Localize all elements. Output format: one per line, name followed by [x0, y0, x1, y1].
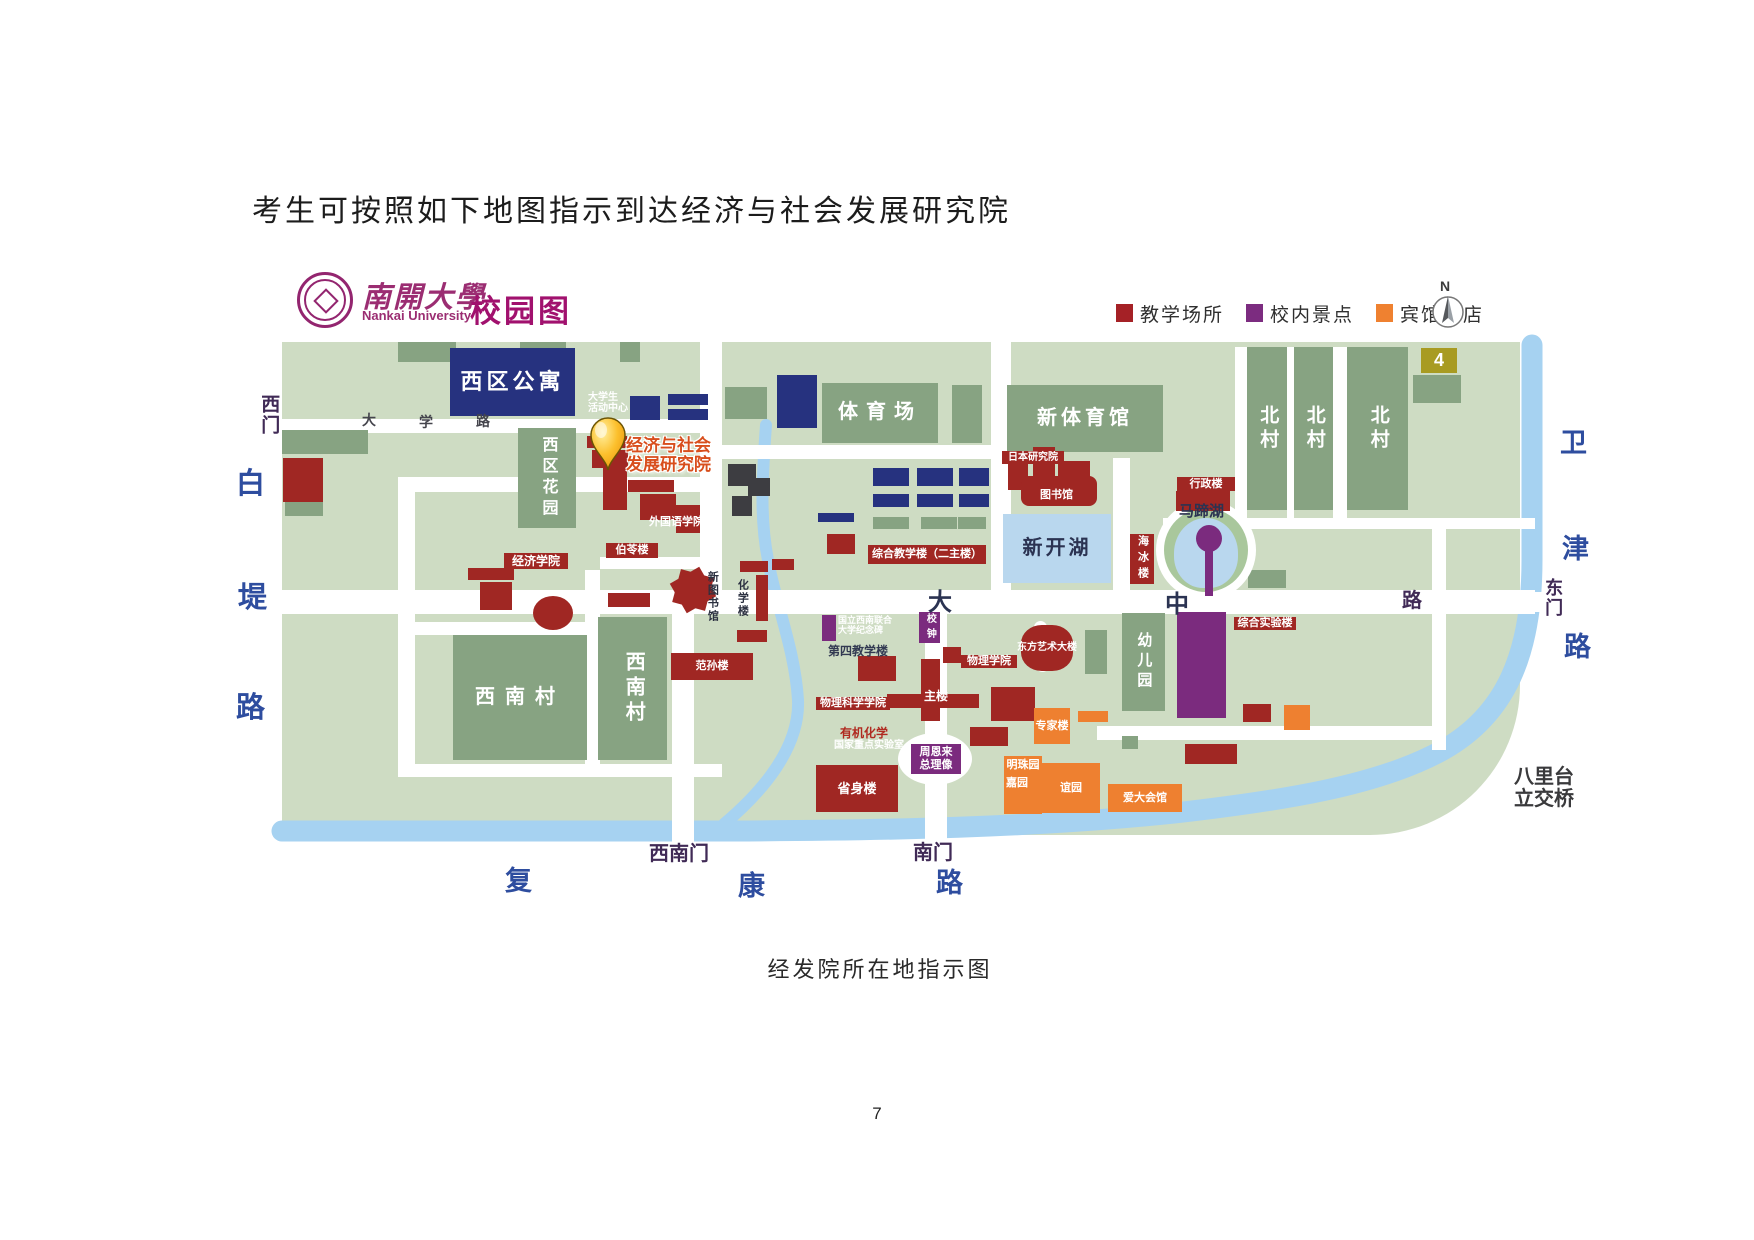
building-beicun-2-label: 北村 [1302, 405, 1324, 453]
red-block [628, 480, 674, 492]
figure-caption: 经发院所在地指示图 [767, 952, 992, 984]
road-label-fukanglu-3: 路 [936, 868, 963, 898]
navy-block [959, 468, 989, 486]
document-page: 考生可按照如下地图指示到达经济与社会发展研究院 南開大學 Nankai Univ… [0, 0, 1754, 1240]
chip-wulikexuexueyuan: 物理科学学院 [816, 697, 890, 710]
building-xiqu-huayuan-label: 西区花园 [538, 436, 557, 520]
page-number: 7 [872, 1104, 881, 1124]
building-beicun-2: 北村 [1294, 347, 1333, 510]
label-huodongzhongxin: 大学生活动中心 [588, 392, 628, 414]
lake-xinkaihu: 新开湖 [1003, 514, 1111, 583]
label-zhulou: 主楼 [924, 690, 948, 703]
building-aidahuiguan: 爱大会馆 [1108, 784, 1182, 812]
navy-block [873, 494, 909, 507]
red-block [772, 559, 794, 570]
gate-label-ximen: 西门 [258, 394, 279, 436]
chip-zongheshiyanlou-label: 综合实验楼 [1238, 617, 1293, 630]
memorial-chip [822, 615, 836, 641]
label-huaxuelou: 化学楼 [736, 579, 748, 618]
logo-en-text: Nankai University [362, 308, 471, 323]
red-block [1185, 744, 1237, 764]
chip-xingzhenglou-label: 行政楼 [1190, 478, 1223, 491]
road-label-baidilu-1: 白 [236, 468, 265, 500]
building-fansunlou: 范孙楼 [671, 653, 753, 680]
gate-label-nanmen: 南门 [913, 842, 953, 864]
chip-wulikexuexueyuan-label: 物理科学学院 [820, 697, 886, 710]
green-block [1413, 375, 1461, 403]
navy-block [630, 396, 660, 420]
orange-block [1078, 711, 1108, 722]
road-v7a [1287, 347, 1294, 518]
navy-block [668, 394, 708, 405]
label-zhongdianshiyanshi: 国家重点实验室 [834, 740, 904, 751]
nankai-logo-icon [297, 272, 353, 328]
building-beicun-1-label: 北村 [1256, 405, 1278, 453]
road-label-daxuelu-1: 大 [362, 413, 376, 429]
label-youjihuaxue: 有机化学 [840, 727, 888, 740]
red-block [756, 575, 768, 621]
road-label-dazhonglu-1: 大 [928, 590, 952, 617]
road-v17 [398, 492, 415, 765]
red-block [1243, 704, 1271, 722]
chip-xingzhenglou: 行政楼 [1177, 477, 1235, 491]
green-block [398, 342, 456, 362]
label-matihu: 马蹄湖 [1179, 504, 1224, 521]
road-v5 [1113, 458, 1130, 590]
target-label-jingfayuan: 经济与社会发展研究院 [626, 436, 711, 474]
label-xintushuguan: 新图书馆 [706, 571, 718, 623]
building-haibinglou: 海冰楼 [1130, 534, 1154, 584]
label-disijiaoxuelou: 第四教学楼 [828, 645, 888, 658]
building-xinancun: 西南村 [453, 635, 587, 760]
building-fansunlou-label: 范孙楼 [696, 660, 729, 673]
road-h19 [398, 622, 600, 635]
statue-zhouenlai-label: 周恩来总理像 [920, 746, 953, 772]
navy-block [917, 468, 953, 486]
red-block [603, 468, 627, 510]
building-beicun-3-label: 北村 [1366, 405, 1388, 453]
navy-block [777, 375, 817, 428]
road-h5 [1097, 726, 1443, 740]
orange-block [1284, 705, 1310, 730]
legend-swatch-icon [1116, 304, 1133, 322]
chip-xiaozhong-label: 校钟 [924, 613, 936, 643]
building-xiqu-gongyu: 西区公寓 [450, 348, 575, 416]
road-v7b [1333, 347, 1347, 518]
red-block [970, 727, 1008, 746]
red-block [827, 534, 855, 554]
road-label-dazhonglu-2: 中 [1165, 592, 1189, 619]
building-xinancun-2-label: 西南村 [621, 651, 645, 726]
building-xintiyuguan-label: 新体育馆 [1037, 407, 1133, 431]
red-block [858, 656, 896, 681]
red-block [480, 582, 512, 610]
road-label-dazhonglu-3: 路 [1402, 590, 1422, 612]
gate-label-dongmen: 东门 [1543, 578, 1563, 618]
legend-swatch-icon [1246, 304, 1263, 322]
green-block [958, 517, 986, 529]
legend-item-1: 校内景点 [1246, 300, 1354, 327]
chip-bolinglou-label: 伯苓楼 [616, 544, 649, 557]
green-block [921, 517, 957, 529]
road-label-baidilu-2: 堤 [238, 582, 267, 614]
statue-zhouenlai: 周恩来总理像 [911, 744, 961, 774]
building-youeryuan: 幼儿园 [1122, 613, 1165, 711]
label-jinianbei: 国立西南联合大学纪念碑 [838, 615, 892, 635]
building-xiqu-gongyu-label: 西区公寓 [460, 369, 564, 395]
matihu-lotus [1196, 525, 1222, 552]
lake-xinkaihu-label: 新开湖 [1023, 537, 1092, 561]
chip-jingjixueyuan-label: 经济学院 [512, 554, 560, 568]
matihu-lotus-stem [1205, 550, 1213, 596]
road-label-daxuelu-2: 学 [419, 415, 433, 431]
label-tushuguan: 图书馆 [1040, 489, 1073, 501]
building-xiqu-huayuan: 西区花园 [518, 428, 576, 528]
navy-block [873, 468, 909, 486]
red-block [943, 647, 961, 663]
gray-block [732, 496, 752, 516]
building-xinancun-label: 西南村 [475, 686, 565, 710]
road-label-weijinlu-2: 津 [1562, 534, 1589, 564]
road-label-daxuelu-3: 路 [476, 414, 490, 430]
building-mingzhuyuan-label: 明珠园 [1007, 756, 1040, 772]
building-xintiyuguan: 新体育馆 [1007, 385, 1163, 452]
red-block [468, 568, 514, 580]
navy-block [818, 513, 854, 522]
building-yiyuan-label: 谊园 [1060, 782, 1082, 795]
red-block [283, 458, 323, 502]
road-label-fukanglu-1: 复 [505, 866, 532, 896]
red-round-block [533, 596, 573, 630]
page-title: 考生可按照如下地图指示到达经济与社会发展研究院 [252, 186, 1011, 230]
road-label-baidilu-3: 路 [236, 692, 265, 724]
location-pin-icon [584, 414, 632, 472]
building-beicun-1: 北村 [1247, 347, 1287, 510]
purple-block [1177, 612, 1226, 718]
marker-4: 4 [1421, 348, 1457, 373]
red-block [991, 687, 1035, 721]
building-haibinglou-label: 海冰楼 [1136, 535, 1149, 583]
green-block [725, 387, 767, 419]
building-yiyuan: 谊园 [1042, 763, 1100, 813]
building-aidahuiguan-label: 爱大会馆 [1123, 792, 1167, 805]
label-balitai: 八里台立交桥 [1514, 766, 1574, 811]
road-v2b [672, 600, 694, 844]
red-block [608, 593, 650, 607]
chip-wulixueyuan: 物理学院 [961, 655, 1017, 668]
green-block [1085, 630, 1107, 674]
chip-bolinglou: 伯苓楼 [606, 543, 658, 558]
legend-item-0: 教学场所 [1116, 300, 1224, 327]
road-v6 [1235, 347, 1247, 518]
chip-wulixueyuan-label: 物理学院 [967, 655, 1011, 668]
gate-label-xinanmen: 西南门 [649, 843, 709, 865]
building-shengshenlou: 省身楼 [816, 765, 898, 812]
map-title: 校园图 [470, 286, 572, 331]
building-shengshenlou-label: 省身楼 [837, 781, 876, 796]
green-block [1122, 736, 1138, 749]
red-block [740, 561, 768, 572]
navy-block [668, 409, 708, 420]
chip-ribenyanjiuyuan: 日本研究院 [1002, 451, 1064, 464]
road-h2 [702, 445, 1005, 459]
marker-4-label: 4 [1434, 350, 1444, 371]
building-tiyuchang: 体育场 [822, 383, 938, 443]
road-label-weijinlu-3: 路 [1564, 632, 1591, 662]
building-xinancun-2: 西南村 [598, 617, 667, 760]
building-youeryuan-label: 幼儿园 [1135, 632, 1153, 692]
compass-icon [1428, 292, 1468, 332]
chip-zongheshiyanlou: 综合实验楼 [1234, 617, 1296, 630]
green-block [952, 385, 982, 443]
green-block [282, 430, 368, 454]
building-zhuanjialou-label: 专家楼 [1036, 720, 1069, 733]
road-label-weijinlu-1: 卫 [1560, 428, 1587, 458]
chip-jingjixueyuan: 经济学院 [504, 553, 568, 569]
road-v8 [1432, 518, 1446, 750]
navy-block [917, 494, 953, 507]
legend-label: 校内景点 [1270, 300, 1354, 327]
gray-block [748, 478, 770, 496]
green-block [620, 342, 640, 362]
chip-ribenyanjiuyuan-label: 日本研究院 [1008, 452, 1058, 464]
green-block [285, 502, 323, 516]
building-zhuanjialou: 专家楼 [1034, 708, 1070, 744]
green-block [873, 517, 909, 529]
legend-swatch-icon [1376, 304, 1393, 322]
building-beicun-3: 北村 [1347, 347, 1408, 510]
road-dazhonglu [282, 590, 1535, 614]
label-jiayuan: 嘉园 [1006, 777, 1028, 789]
red-block [737, 630, 767, 642]
building-dongfangyishu: 东方艺术大楼 [1021, 625, 1073, 671]
building-dongfangyishu-label: 东方艺术大楼 [1017, 642, 1077, 654]
chip-zonghejiaoxuelou: 综合教学楼（二主楼） [868, 545, 986, 564]
navy-block [959, 494, 989, 507]
building-tiyuchang-label: 体育场 [838, 401, 922, 425]
chip-zonghejiaoxuelou-label: 综合教学楼（二主楼） [872, 548, 982, 561]
road-label-fukanglu-2: 康 [738, 871, 765, 901]
green-block [1248, 570, 1286, 588]
legend-label: 教学场所 [1140, 300, 1224, 327]
label-waiguoyu: 外国语学院 [649, 516, 704, 528]
